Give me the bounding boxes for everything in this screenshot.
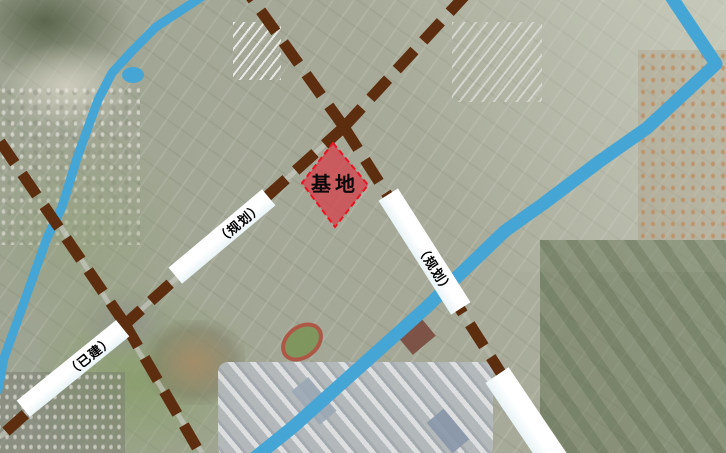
map-overlay	[0, 0, 726, 453]
pond	[122, 67, 144, 83]
site-label: 基地	[293, 174, 377, 196]
road-dashed-northeast-segment	[344, 0, 472, 127]
road-dashed-north-segment	[243, 0, 344, 127]
planned-roads	[0, 0, 552, 453]
rivers	[0, 0, 716, 453]
existing-road-traces	[0, 127, 552, 453]
river-main	[252, 0, 716, 453]
satellite-planning-map: （规划） （规划） （已建） 基地	[0, 0, 726, 453]
